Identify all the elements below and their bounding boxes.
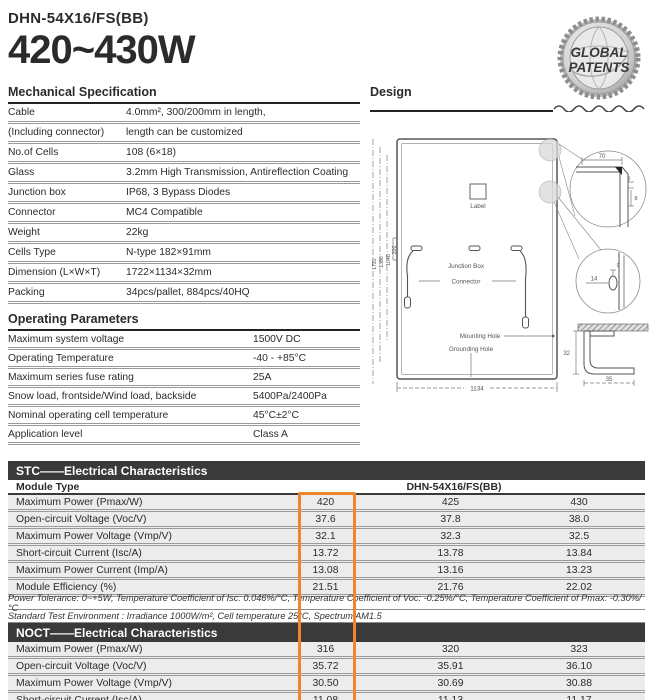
wavy-line-icon [553,102,645,112]
design-section: Design [370,85,645,445]
row-label: Maximum Power (Pmax/W) [8,497,263,508]
table-row: Maximum series fuse rating25A [8,369,360,388]
cell-value: 21.51 [263,582,388,593]
dim-8: 8 [634,196,637,202]
param-label: Maximum series fuse rating [8,372,253,383]
spec-label: Junction box [8,187,126,198]
noct-section-bar: NOCT——Electrical Characteristics [8,623,645,642]
spec-label: Packing [8,287,126,298]
row-label: Maximum Power (Pmax/W) [8,644,263,655]
cell-value: 11.13 [388,695,513,700]
param-label: Snow load, frontside/Wind load, backside [8,391,253,402]
divider [370,110,553,112]
cell-value: 11.08 [263,695,388,700]
cell-value: 30.69 [388,678,513,689]
cell-value: 430 [513,497,645,508]
table-row: Application levelClass A [8,426,360,445]
label-text: Label [470,203,485,210]
spec-value: MC4 Compatible [126,207,360,218]
dim-1040: 1040 [386,254,392,266]
table-row: Cells TypeN-type 182×91mm [8,244,360,264]
table-row: Packing34pcs/pallet, 884pcs/40HQ [8,284,360,304]
connector-label: Connector [451,279,480,286]
zoom-area-corner [539,139,561,161]
param-value: 25A [253,372,360,383]
badge-text-patents: PATENTS [568,60,629,75]
panel-outline [397,139,557,379]
grounding-hole-label: Grounding Hole [449,346,494,353]
table-row: Open-circuit Voltage (Voc/V)37.637.838.0 [8,512,645,529]
badge-text-global: GLOBAL [571,45,628,60]
dim-1722: 1722 [372,258,378,270]
table-row: Open-circuit Voltage (Voc/V)35.7235.9136… [8,659,645,676]
dim-9: 9 [617,263,620,269]
row-label: Open-circuit Voltage (Voc/V) [8,514,263,525]
junction-box-label: Junction Box [448,263,485,270]
param-value: 1500V DC [253,334,360,345]
electrical-characteristics: STC——Electrical Characteristics Module T… [8,461,645,700]
param-value: Class A [253,429,360,440]
cell-value: 13.08 [263,565,388,576]
cell-value: 420 [263,497,388,508]
row-label: Open-circuit Voltage (Voc/V) [8,661,263,672]
footnote-text: Standard Test Environment : Irradiance 1… [8,611,382,621]
spec-value: N-type 182×91mm [126,247,360,258]
dim-32: 32 [563,351,570,357]
cell-value: 13.78 [388,548,513,559]
dim-35: 35 [606,377,613,383]
footnote-text: Power Tolerance: 0~+5W, Temperature Coef… [8,593,645,613]
table-row: Junction boxIP68, 3 Bypass Diodes [8,184,360,204]
param-label: Maximum system voltage [8,334,253,345]
stc-footnote-tolerance: Power Tolerance: 0~+5W, Temperature Coef… [8,597,645,610]
table-row: Maximum Power Voltage (Vmp/V)30.5030.693… [8,676,645,693]
param-label: Operating Temperature [8,353,253,364]
row-label: Maximum Power Current (Imp/A) [8,565,263,576]
param-value: -40 - +85°C [253,353,360,364]
stc-section-bar: STC——Electrical Characteristics [8,461,645,480]
row-label: Maximum Power Voltage (Vmp/V) [8,678,263,689]
spec-value: 34pcs/pallet, 884pcs/40HQ [126,287,360,298]
cell-value: 13.23 [513,565,645,576]
glass-section [578,324,648,331]
cell-value: 30.88 [513,678,645,689]
operating-params-title: Operating Parameters [8,312,360,329]
table-row: Weight22kg [8,224,360,244]
dim-1134: 1134 [470,386,484,393]
cell-value: 35.72 [263,661,388,672]
design-rule [370,102,645,112]
table-row: ConnectorMC4 Compatible [8,204,360,224]
table-row: (Including connector)length can be custo… [8,124,360,144]
left-column: Mechanical Specification Cable4.0mm², 30… [8,85,360,445]
spec-value: 4.0mm², 300/200mm in length, [126,107,360,118]
dim-14: 14 [591,277,598,283]
table-row: Maximum Power Voltage (Vmp/V)32.132.332.… [8,529,645,546]
table-row: Short-circuit Current (Isc/A)13.7213.781… [8,546,645,563]
table-row: Cable4.0mm², 300/200mm in length, [8,104,360,124]
spec-label: No.of Cells [8,147,126,158]
spec-label: (Including connector) [8,127,126,138]
spec-value: 1722×1134×32mm [126,267,360,278]
spec-label: Weight [8,227,126,238]
mounting-hole-label: Mounting Hole [460,333,501,340]
row-label: Module Efficiency (%) [8,582,263,593]
panel-technical-drawing: 1722 1380 1040 200 160 Label [370,134,649,398]
operating-params-table: Maximum system voltage1500V DC Operating… [8,331,360,445]
cell-value: 32.3 [388,531,513,542]
spec-label: Dimension (L×W×T) [8,267,126,278]
table-row: Maximum Power (Pmax/W)420425430 [8,495,645,512]
cell-value: 32.1 [263,531,388,542]
param-value: 45°C±2°C [253,410,360,421]
cell-value: 320 [388,644,513,655]
cell-value: 35.91 [388,661,513,672]
frame-profile [584,331,634,374]
dim-1380: 1380 [379,256,385,268]
cell-value: 11.17 [513,695,645,700]
cell-value: 37.8 [388,514,513,525]
cell-value: 30.50 [263,678,388,689]
spec-value: IP68, 3 Bypass Diodes [126,187,360,198]
cell-value: 21.76 [388,582,513,593]
spec-value: 108 (6×18) [126,147,360,158]
table-row: No.of Cells108 (6×18) [8,144,360,164]
table-row: Maximum Power Current (Imp/A)13.0813.161… [8,563,645,580]
table-row: Short-circuit Current (Isc/A)11.0811.131… [8,693,645,700]
param-label: Application level [8,429,253,440]
cell-value: 36.10 [513,661,645,672]
dim-3: 3 [628,177,631,183]
table-row: Dimension (L×W×T)1722×1134×32mm [8,264,360,284]
spec-label: Glass [8,167,126,178]
spec-value: length can be customized [126,127,360,138]
mechanical-spec-title: Mechanical Specification [8,85,360,102]
spec-label: Connector [8,207,126,218]
cell-value: 32.5 [513,531,645,542]
table-row: Nominal operating cell temperature45°C±2… [8,407,360,426]
cell-value: 37.6 [263,514,388,525]
cell-value: 13.72 [263,548,388,559]
module-type-row: Module Type DHN-54X16/FS(BB) [8,480,645,495]
cell-value: 323 [513,644,645,655]
table-row: Glass3.2mm High Transmission, Antireflec… [8,164,360,184]
table-row: Operating Temperature-40 - +85°C [8,350,360,369]
mechanical-spec-table: Cable4.0mm², 300/200mm in length, (Inclu… [8,104,360,304]
cell-value: 13.84 [513,548,645,559]
spec-label: Cells Type [8,247,126,258]
spec-label: Cable [8,107,126,118]
param-value: 5400Pa/2400Pa [253,391,360,402]
cell-value: 13.16 [388,565,513,576]
zoom-area-hole [539,181,561,203]
row-label: Short-circuit Current (Isc/A) [8,695,263,700]
dim-70: 70 [599,154,606,160]
design-title: Design [370,85,645,102]
spec-value: 22kg [126,227,360,238]
cell-value: 22.02 [513,582,645,593]
module-type-value: DHN-54X16/FS(BB) [263,481,645,493]
module-type-label: Module Type [8,481,263,493]
table-row: Maximum system voltage1500V DC [8,331,360,350]
datasheet-page: DHN-54X16/FS(BB) 420~430W GLOBAL PATENTS… [0,0,653,700]
table-row: Maximum Power (Pmax/W)316320323 [8,642,645,659]
param-label: Nominal operating cell temperature [8,410,253,421]
table-row: Snow load, frontside/Wind load, backside… [8,388,360,407]
cell-value: 38.0 [513,514,645,525]
spec-value: 3.2mm High Transmission, Antireflection … [126,167,360,178]
row-label: Short-circuit Current (Isc/A) [8,548,263,559]
cell-value: 316 [263,644,388,655]
cell-value: 425 [388,497,513,508]
row-label: Maximum Power Voltage (Vmp/V) [8,531,263,542]
